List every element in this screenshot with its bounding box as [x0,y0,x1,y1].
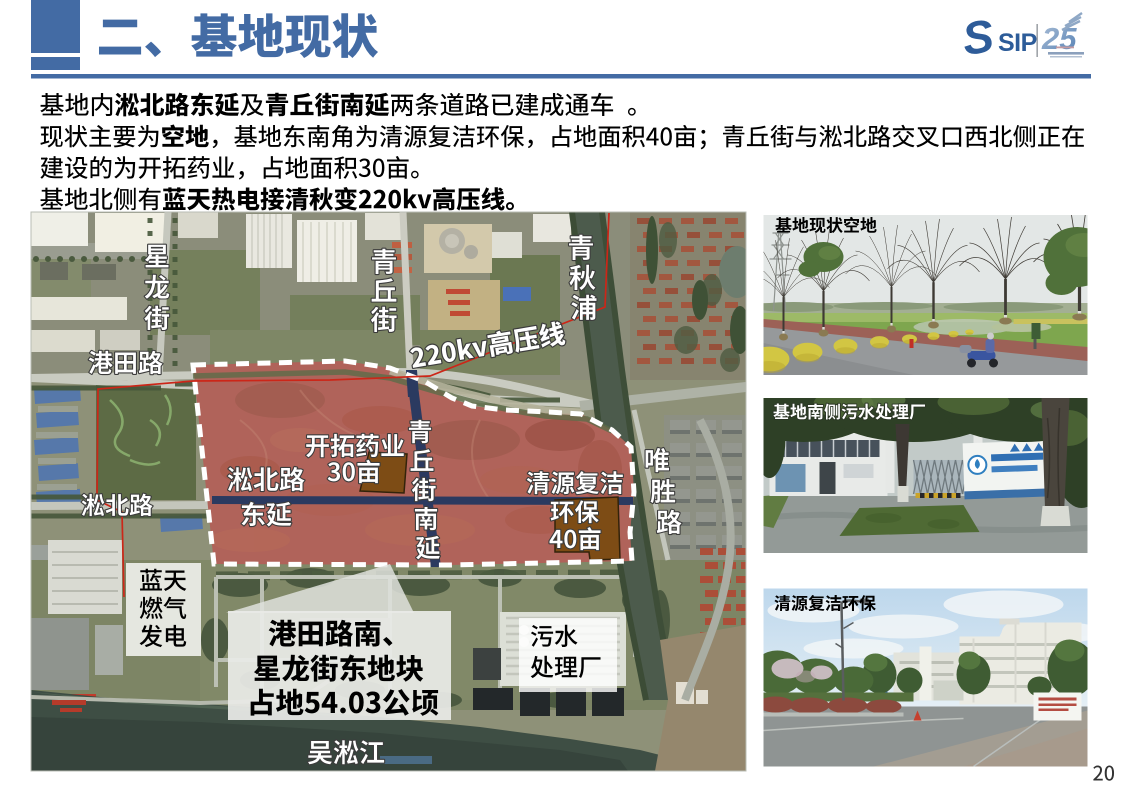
svg-text:SIP: SIP [998,29,1037,57]
